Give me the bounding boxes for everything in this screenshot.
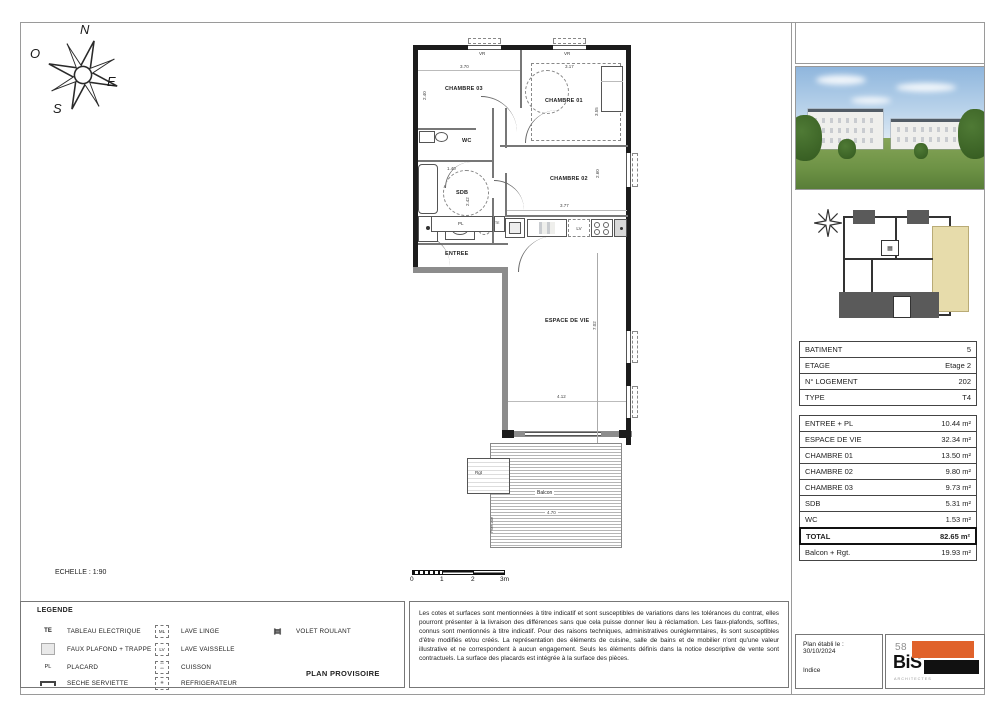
scale-tick-2: 2 [471,576,475,583]
table-row-balcony: Balcon + Rgt.19.93 m² [799,544,977,561]
label-chambre01: CHAMBRE 01 [545,98,583,104]
key-plan-core: ▦ [881,240,899,256]
row-label: N° LOGEMENT [805,377,858,386]
lave-linge-symbol: ML [151,625,173,638]
cloud [851,97,891,104]
balcony-rangement [467,458,510,494]
seche-serviette-symbol [37,681,59,686]
compass-rose: N O E S [22,18,142,133]
legend-item-tableau-electrique: TE TABLEAU ELECTRIQUE [37,624,141,638]
legend-item-lave-vaisselle: LV LAVE VAISSELLE [151,642,235,656]
pl-tag: PL [458,221,464,226]
table-row: WC1.53 m² [799,511,977,528]
key-plan-balcony-top-1 [853,210,875,224]
legend-item-seche-serviette: SECHE SERVIETTE [37,676,128,690]
row-value: 202 [958,377,971,386]
scale-seg-1 [412,570,443,575]
volet-roulant-box-3 [632,153,638,187]
key-plan-wall-h [843,258,933,260]
legend-label: PLACARD [67,664,98,671]
wall-top [413,45,631,50]
row-value: 5 [967,345,971,354]
window-espace-1 [626,331,631,363]
architect-logo: 58 BiS ARCHITECTES [885,634,985,689]
legend-label: TABLEAU ELECTRIQUE [67,628,141,635]
row-value: 9.73 m² [946,483,971,492]
legend-box: LEGENDE TE TABLEAU ELECTRIQUE FAUX PLAFO… [20,601,405,688]
unit-info-table: BATIMENT5 ETAGEEtage 2 N° LOGEMENT202 TY… [799,342,977,561]
wall-espace-left [502,267,508,437]
te-tag: TE [495,221,499,225]
scale-tick-0: 0 [410,576,414,583]
table-row: CHAMBRE 029.80 m² [799,463,977,480]
total-value: 82.65 m² [940,532,970,541]
sdb-bathtub [418,164,438,214]
disclaimer-box: Les cotes et surfaces sont mentionnées à… [409,601,789,688]
key-plan-wall-v2 [871,258,873,292]
row-value: 13.50 m² [941,451,971,460]
vr-tag-1: VR [479,51,485,56]
dim-chambre01-h: 3.55 [594,107,599,116]
column-divider [791,22,792,695]
cuisson-symbol: °°°° [151,661,173,674]
kitchen-end-panel [614,219,627,237]
lv-tag: LV [576,226,581,231]
label-rgt: Rgt [475,470,482,475]
table-row: CHAMBRE 0113.50 m² [799,447,977,464]
refrigerateur-symbol: ✳ [151,677,173,690]
volet-roulant-box-5 [632,386,638,418]
logo-subtitle: ARCHITECTES [894,677,932,681]
legend-item-lave-linge: ML LAVE LINGE [151,624,219,638]
partition-ch01-ch02 [500,145,628,147]
photo-tree [958,109,985,159]
row-value: 10.44 m² [941,419,971,428]
window-chambre01 [553,45,586,50]
compass-south-label: S [53,101,62,116]
label-chambre03: CHAMBRE 03 [445,86,483,92]
partition-ch03-wc [418,128,476,130]
scale-tick-1: 1 [440,576,444,583]
logo-black-block [924,660,979,674]
compass-north-label: N [80,22,89,37]
photo-tree [914,143,928,159]
drawing-sheet: N O E S VR VR [0,0,1000,707]
legend-label: LAVE LINGE [181,628,219,635]
kitchen-sink-grate [539,222,555,234]
window-chambre02 [626,153,631,187]
dim-chambre03-w: 3.70 [460,64,469,69]
key-plan: ▦ [795,196,985,338]
cloud [816,75,866,85]
label-wc: WC [462,138,472,144]
row-label: CHAMBRE 01 [805,451,853,460]
dim-chambre01-w: 3.17 [565,64,574,69]
wc-cistern [419,131,435,143]
kitchen-fridge-inner [509,222,521,234]
wall-post-right [619,430,631,438]
dim-chambre03-h: 2.40 [422,91,427,100]
date-label: Plan établi le : [803,641,875,648]
key-plan-stair-core [893,296,911,318]
window-espace-2 [626,386,631,418]
vr-tag-2: VR [564,51,570,56]
label-sdb: SDB [456,190,468,196]
partition-kitchen-top [505,215,628,217]
row-label: CHAMBRE 03 [805,483,853,492]
legend-label: FAUX PLAFOND + TRAPPE [67,646,151,653]
disclaimer-text: Les cotes et surfaces sont mentionnées à… [419,609,779,664]
compass-east-label: E [107,74,116,89]
title-box-empty [795,22,985,64]
row-label: BATIMENT [805,345,842,354]
scale-bar: 0 1 2 3m [412,570,512,586]
row-label: WC [805,515,818,524]
lave-vaisselle-symbol: LV [151,643,173,656]
logo-orange-block [912,641,974,658]
volet-roulant-symbol: [▤] [266,628,288,635]
door-arc-espace [518,236,554,272]
legend-title: LEGENDE [37,607,404,614]
volet-roulant-box-1 [468,38,501,44]
indice-label: Indice [803,667,875,674]
row-label: ENTREE + PL [805,419,853,428]
volet-roulant-box-4 [632,331,638,363]
row-label: CHAMBRE 02 [805,467,853,476]
table-row: N° LOGEMENT202 [799,373,977,390]
photo-tree [838,139,856,159]
dimline-espace [508,401,626,402]
legend-item-cuisson: °°°° CUISSON [151,660,211,674]
ceiling-circle-chambre01 [525,70,569,114]
row-label: ETAGE [805,361,830,370]
row-label: TYPE [805,393,825,402]
legend-item-refrigerateur: ✳ REFRIGERATEUR [151,676,237,690]
row-label: SDB [805,499,820,508]
label-balcon: Balcon [535,490,554,496]
total-label: TOTAL [806,532,830,541]
legend-item-faux-plafond: FAUX PLAFOND + TRAPPE [37,642,151,656]
table-row: CHAMBRE 039.73 m² [799,479,977,496]
row-value: 1.53 m² [946,515,971,524]
bay-window-balcony [525,432,601,436]
dim-espace-w: 4.12 [557,394,566,399]
table-row: BATIMENT5 [799,341,977,358]
row-label: ESPACE DE VIE [805,435,862,444]
row-value: 5.31 m² [946,499,971,508]
row-label: Balcon + Rgt. [805,548,850,557]
te-symbol: TE [37,628,59,634]
floor-plan: VR VR [405,38,655,560]
partition-ch03-ch01 [520,50,522,108]
row-value: T4 [962,393,971,402]
project-photo [795,66,985,190]
bed-chambre01 [601,66,623,112]
label-espace-de-vie: ESPACE DE VIE [545,318,589,324]
legend-label: VOLET ROULANT [296,628,351,635]
legend-label: LAVE VAISSELLE [181,646,235,653]
dimline-ch03 [418,70,520,71]
wall-right [626,45,631,445]
bed-line [601,81,623,82]
table-row-total: TOTAL82.65 m² [799,527,977,545]
volet-roulant-box-2 [553,38,586,44]
key-plan-balcony-top-2 [907,210,929,224]
dim-sdb-w: 1.40 [447,166,456,171]
row-value: 32.34 m² [941,435,971,444]
dim-chambre02-w: 3.77 [560,203,569,208]
key-plan-balcony-bottom [839,292,939,318]
table-row: ETAGEEtage 2 [799,357,977,374]
table-row: TYPET4 [799,389,977,406]
label-pare-vue: Pare-vue [489,517,494,533]
wall-post-left [502,430,514,438]
scale-seg-2 [442,570,474,575]
compass-star-icon [34,26,132,124]
dim-sdb-h: 2.42 [465,197,470,206]
row-value: 9.80 m² [946,467,971,476]
door-arc-chambre03 [481,96,517,132]
key-plan-compass-icon [813,208,843,238]
legend-label: CUISSON [181,664,211,671]
lave-vaisselle-box: LV [568,219,590,237]
scale-text: ECHELLE : 1:90 [55,569,106,576]
legend-item-placard: PL PLACARD [37,660,98,674]
dim-balcon-w: 4.70 [545,510,558,515]
legend-label: REFRIGERATEUR [181,680,237,687]
wc-toilet [435,132,448,142]
door-arc-chambre02 [494,180,524,210]
label-chambre02: CHAMBRE 02 [550,176,588,182]
photo-tree [795,115,822,161]
compass-west-label: O [30,46,40,61]
dimline-ch02 [507,210,627,211]
pl-symbol: PL [37,664,59,670]
row-value: 19.93 m² [941,548,971,557]
label-entree: ENTREE [445,251,469,257]
kitchen-hob [591,219,613,237]
dim-espace-h: 7.02 [592,321,597,330]
wall-entree-bottom [413,267,508,273]
legend-label: SECHE SERVIETTE [67,680,128,687]
plan-provisoire-label: PLAN PROVISOIRE [306,669,380,678]
date-box: Plan établi le : 30/10/2024 Indice [795,634,883,689]
faux-plafond-symbol [37,643,59,655]
row-value: Etage 2 [945,361,971,370]
scale-seg-3 [473,570,505,575]
legend-item-volet-roulant: [▤] VOLET ROULANT [266,624,351,638]
shower-drain [426,226,430,230]
dim-chambre02-h: 2.60 [595,169,600,178]
partition-wc-sdb [418,160,493,162]
table-row: ESPACE DE VIE32.34 m² [799,431,977,448]
cloud [896,83,956,92]
table-row: ENTREE + PL10.44 m² [799,415,977,432]
window-chambre03 [468,45,501,50]
table-row: SDB5.31 m² [799,495,977,512]
scale-tick-3: 3m [500,576,509,583]
date-value: 30/10/2024 [803,648,875,655]
